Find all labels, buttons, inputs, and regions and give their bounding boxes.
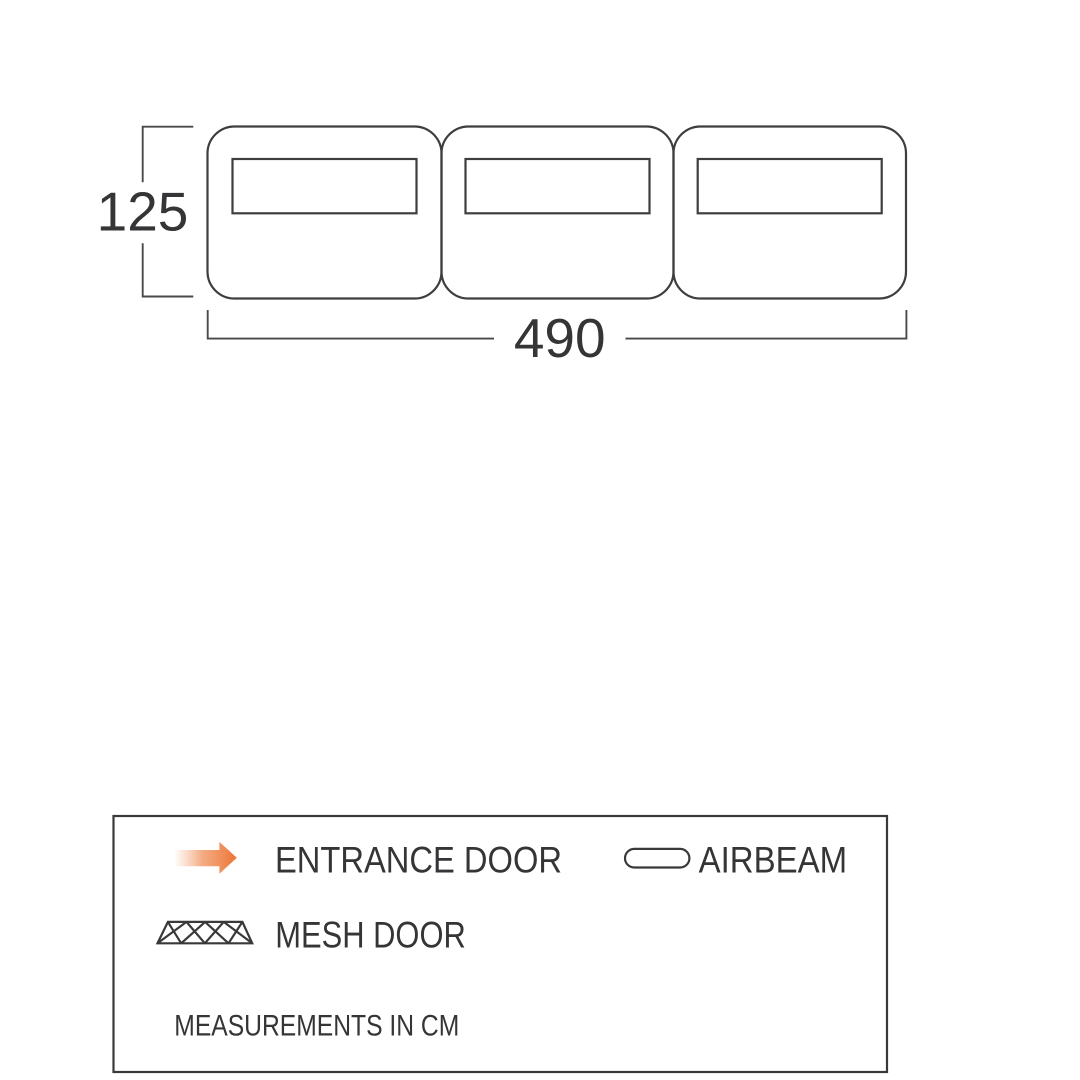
svg-text:125: 125: [97, 181, 189, 243]
svg-text:490: 490: [514, 307, 606, 369]
svg-text:AIRBEAM: AIRBEAM: [699, 840, 848, 881]
svg-text:ENTRANCE DOOR: ENTRANCE DOOR: [275, 840, 562, 881]
svg-text:MEASUREMENTS IN CM: MEASUREMENTS IN CM: [174, 1010, 459, 1043]
svg-text:MESH DOOR: MESH DOOR: [275, 915, 466, 956]
